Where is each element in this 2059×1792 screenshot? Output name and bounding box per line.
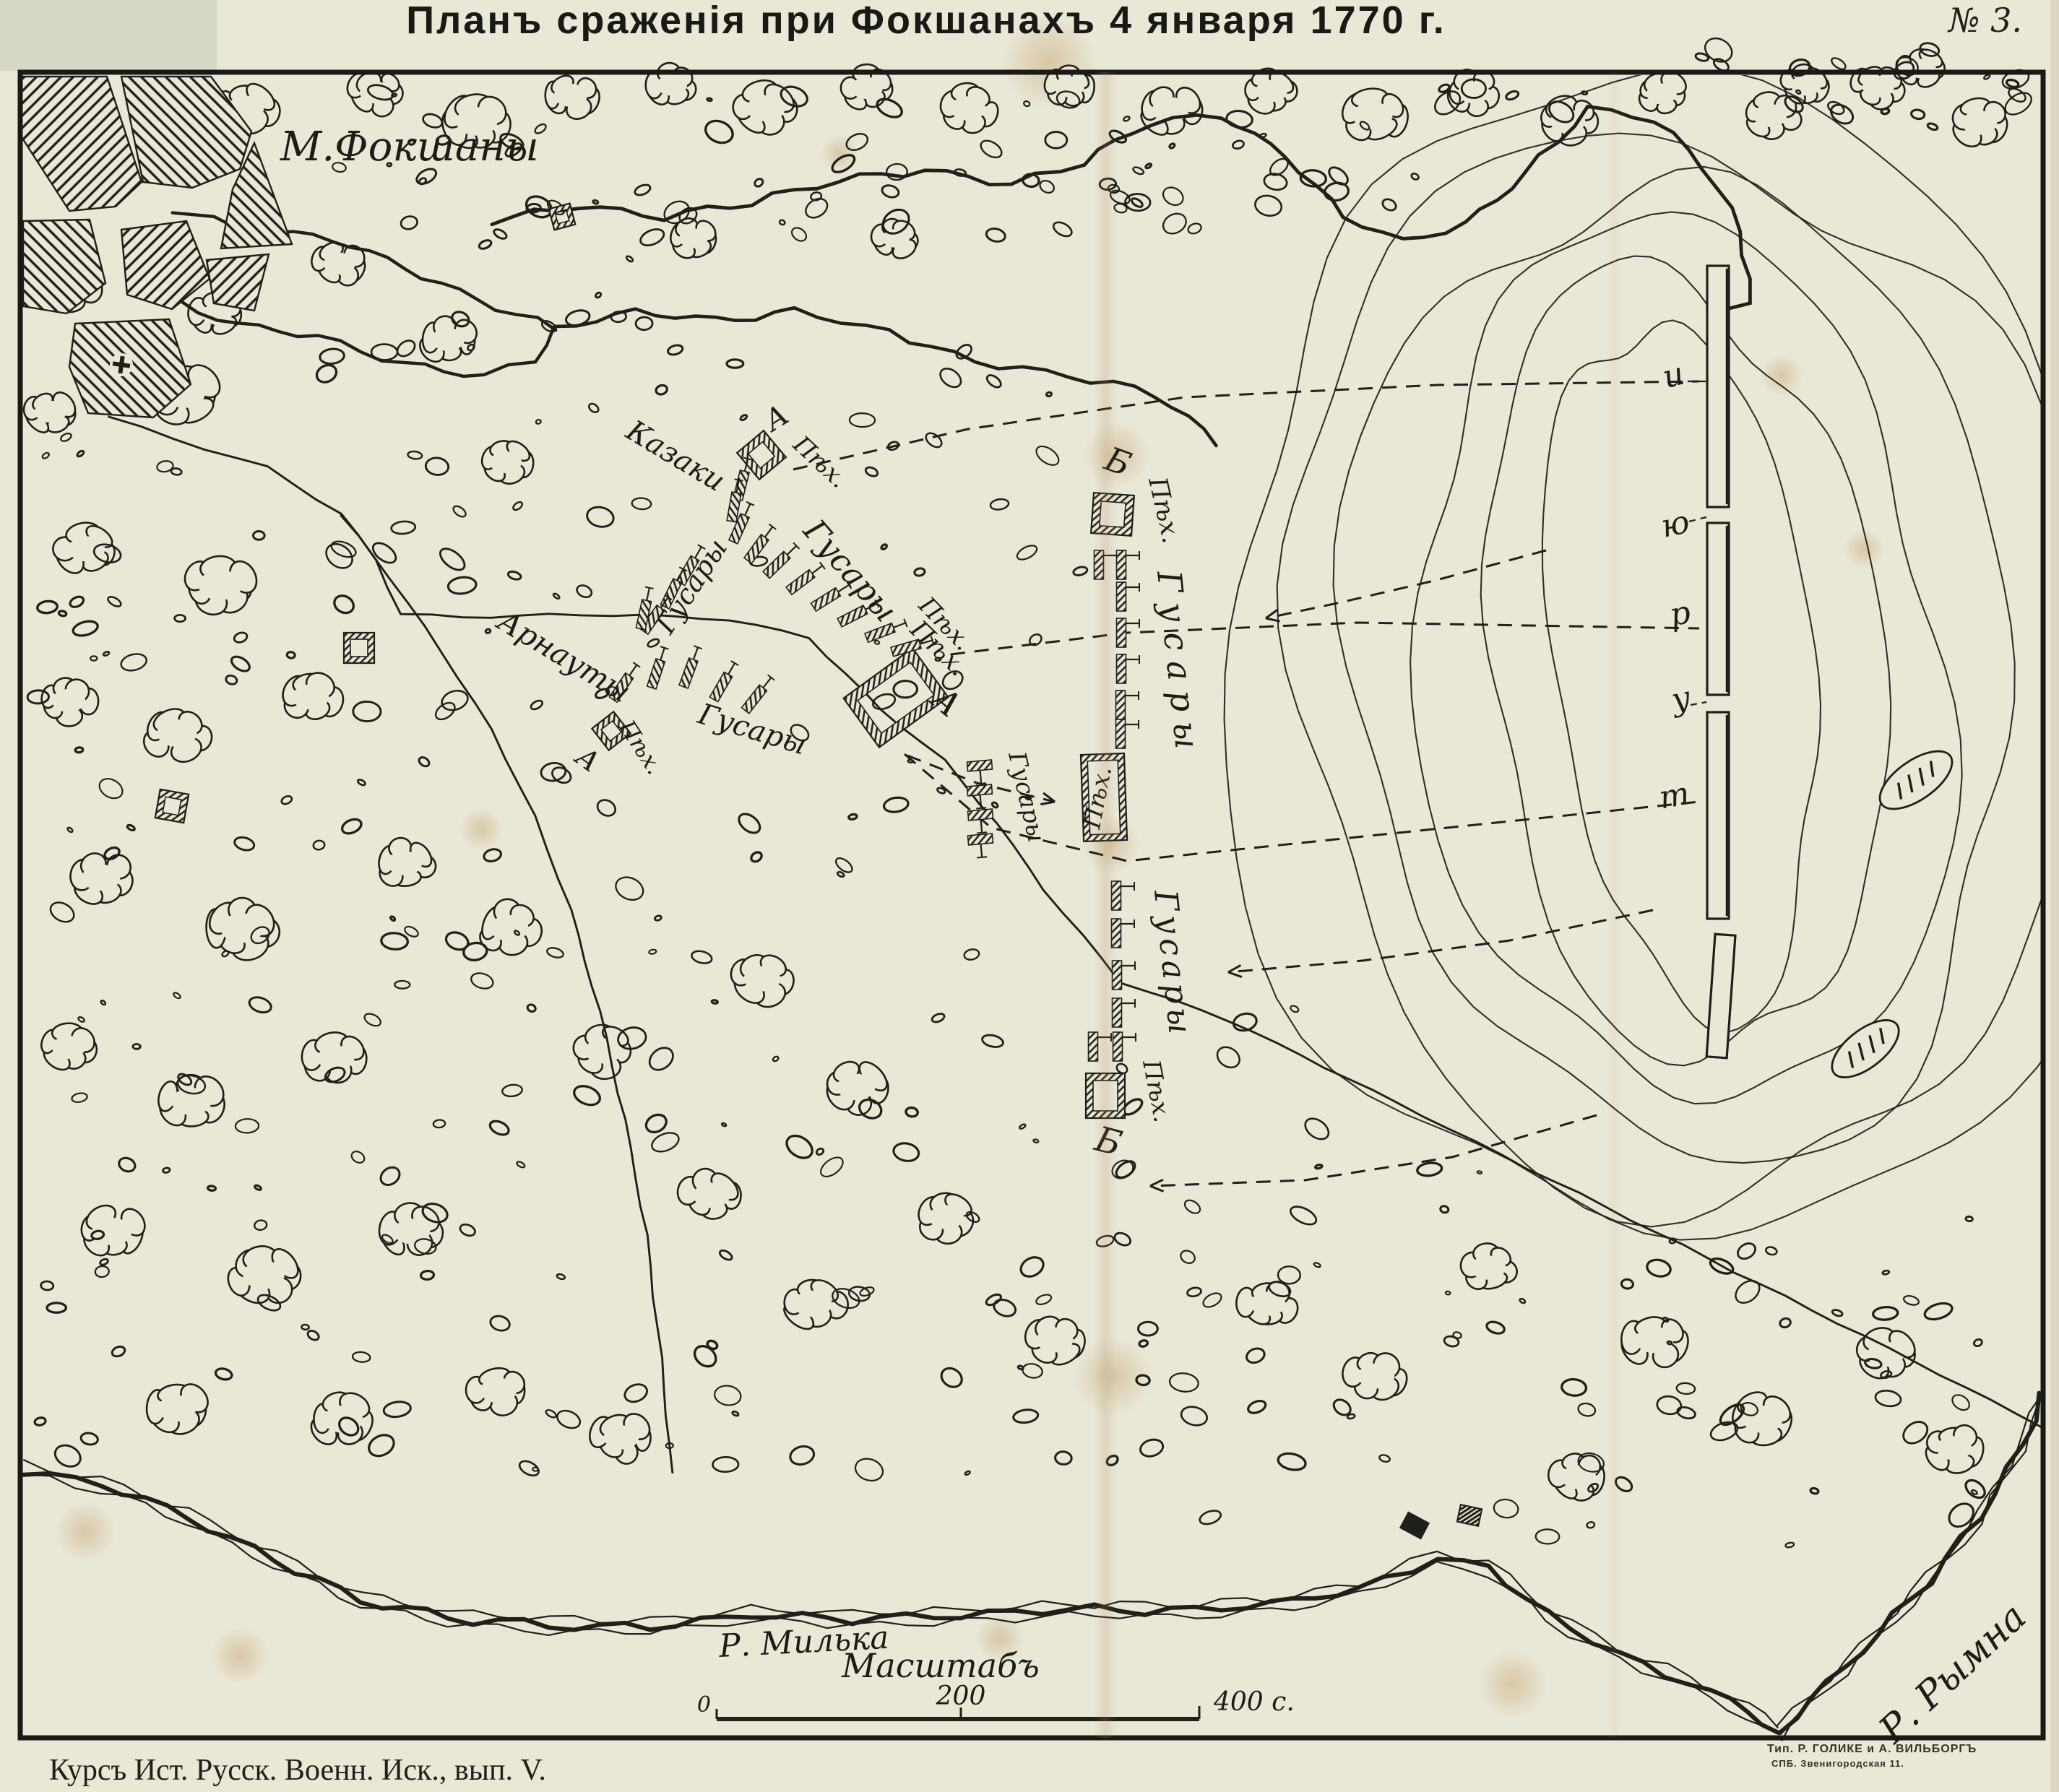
entrenchment-segment	[1707, 712, 1729, 919]
town-label: М.Фокшаны	[280, 124, 539, 170]
bush-core	[394, 1219, 431, 1245]
paper-stain	[55, 1501, 116, 1562]
bush-core	[1471, 1255, 1506, 1279]
bush-core	[657, 75, 687, 96]
bush-core	[951, 96, 985, 120]
bottom-caption: Курсъ Ист. Русск. Военн. Иск., вып. V.	[49, 1754, 546, 1787]
page-edge-shade	[2050, 0, 2059, 1792]
map-glyph	[1117, 654, 1126, 683]
bush-core	[293, 685, 329, 710]
bush-core	[1962, 111, 1997, 134]
bush-core	[387, 851, 422, 875]
bush-core	[1743, 1406, 1783, 1433]
bush-core	[480, 1378, 517, 1403]
bush-core	[585, 1039, 622, 1064]
bush-core	[794, 1291, 832, 1317]
bush-core	[1646, 84, 1677, 105]
bush-core	[604, 1425, 639, 1449]
paper-stain	[459, 808, 503, 851]
bush-core	[82, 865, 121, 891]
battle-map-svg: КазакиАПѣх.ГусарыГусарыПѣх.АрнаутыАПѣх.Г…	[0, 0, 2059, 1792]
bush-core	[199, 570, 243, 600]
paper-stain	[1844, 529, 1884, 569]
map-glyph	[1116, 719, 1126, 748]
bush-core	[172, 1088, 212, 1115]
bush-core	[52, 689, 85, 712]
bush-core	[157, 719, 197, 747]
printer-line2: СПБ. Звенигородская 11.	[1771, 1758, 1904, 1769]
map-glyph	[976, 783, 986, 784]
bush-core	[35, 401, 66, 423]
map-glyph	[967, 784, 992, 796]
scale-400: 400 с.	[1213, 1687, 1295, 1717]
bush-core	[324, 253, 355, 274]
page-corner-shade	[0, 0, 217, 71]
paper-stain	[821, 134, 858, 172]
map-glyph	[967, 809, 993, 821]
bush-core	[554, 84, 587, 107]
bush-core	[851, 77, 883, 99]
bush-core	[52, 1036, 85, 1059]
scale-200: 200	[936, 1681, 986, 1711]
plate-number: № 3.	[1947, 1, 2022, 40]
bush-core	[694, 1183, 730, 1208]
entrenchment-letter-т: т	[1657, 775, 1693, 816]
bush-core	[1353, 102, 1393, 129]
paper-stain	[211, 1627, 269, 1684]
bush-core	[1862, 76, 1894, 98]
bush-core	[1753, 104, 1787, 127]
bush-core	[679, 228, 708, 248]
bush-core	[69, 537, 105, 562]
map-glyph	[967, 834, 993, 845]
bush-core	[1636, 1327, 1674, 1353]
map-glyph	[1117, 582, 1126, 611]
bush-core	[1358, 1364, 1395, 1389]
bush-core	[1937, 1436, 1972, 1460]
paper-background	[0, 0, 2059, 1792]
paper-stain	[1478, 1650, 1548, 1719]
bush-core	[929, 1205, 964, 1229]
scale-label: Масштабъ	[841, 1646, 1040, 1685]
bush-core	[837, 1074, 876, 1100]
map-glyph	[1117, 618, 1126, 647]
bush-core	[1037, 1328, 1074, 1353]
map-glyph	[977, 832, 987, 833]
map-glyph	[1116, 691, 1126, 719]
map-glyph	[976, 808, 986, 808]
entrenchment-segment	[1707, 266, 1729, 507]
bush-core	[491, 915, 529, 941]
map-glyph	[977, 857, 987, 857]
scale-0: 0	[697, 1692, 711, 1718]
entrenchment-segment	[1707, 523, 1729, 695]
bush-core	[490, 451, 522, 473]
map-glyph	[1117, 550, 1126, 579]
map-glyph	[967, 760, 992, 771]
bush-core	[1256, 80, 1287, 102]
map-title: Планъ сраженія при Фокшанахъ 4 января 17…	[406, 0, 1446, 42]
printer-line1: Тип. Р. ГОЛИКЕ и А. ВИЛЬБОРГЪ	[1767, 1743, 1977, 1755]
bush-core	[747, 95, 785, 121]
map-sheet: КазакиАПѣх.ГусарыГусарыПѣх.АрнаутыАПѣх.Г…	[0, 0, 2059, 1792]
building-symbol-icon	[1457, 1505, 1482, 1526]
bush-core	[243, 1260, 284, 1289]
bush-core	[744, 966, 781, 992]
bush-core	[431, 328, 465, 351]
bush-core	[158, 1395, 197, 1421]
